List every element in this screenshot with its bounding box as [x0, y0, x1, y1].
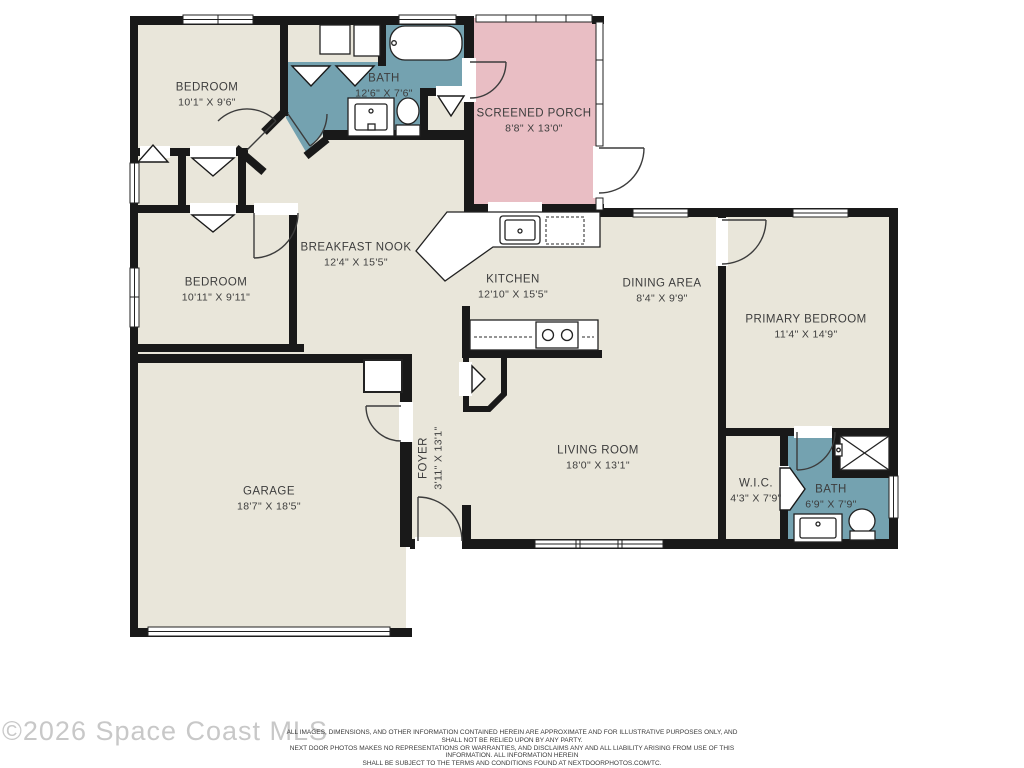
disclaimer-line-1: ALL IMAGES, DIMENSIONS, AND OTHER INFORM…: [277, 729, 747, 745]
floor-plan: BEDROOM10'1" X 9'6" BATH12'6" X 7'6" SCR…: [0, 0, 1024, 768]
label-breakfast-nook: BREAKFAST NOOK12'4" X 15'5": [301, 242, 412, 269]
label-bath-2: BATH6'9" X 7'9": [805, 484, 857, 511]
kitchen-counter-lower: [470, 320, 598, 350]
disclaimer-line-2: NEXT DOOR PHOTOS MAKES NO REPRESENTATION…: [277, 745, 747, 761]
disclaimer-text: ALL IMAGES, DIMENSIONS, AND OTHER INFORM…: [277, 729, 747, 768]
label-kitchen: KITCHEN12'10" X 15'5": [478, 274, 548, 301]
label-primary-bedroom: PRIMARY BEDROOM11'4" X 14'9": [745, 314, 866, 341]
tub-faucet: [392, 41, 397, 46]
label-screened-porch: SCREENED PORCH8'8" X 13'0": [477, 108, 592, 135]
washer: [320, 25, 350, 54]
label-bedroom-1: BEDROOM10'1" X 9'6": [176, 82, 239, 109]
bath2-toilet: [849, 509, 875, 533]
porch-screen-right: [596, 22, 603, 146]
dryer: [354, 25, 380, 56]
disclaimer-line-3: SHALL BE SUBJECT TO THE TERMS AND CONDIT…: [277, 760, 747, 768]
label-bath-1: BATH12'6" X 7'6": [355, 73, 413, 100]
label-dining-area: DINING AREA8'4" X 9'9": [622, 278, 701, 305]
water-heater-alcove: [364, 360, 402, 392]
label-bedroom-2: BEDROOM10'11" X 9'11": [182, 277, 251, 304]
label-garage: GARAGE18'7" X 18'5": [237, 486, 301, 513]
bathtub: [390, 26, 462, 60]
label-living-room: LIVING ROOM18'0" X 13'1": [557, 445, 639, 472]
label-foyer: FOYER3'11" X 13'1": [418, 426, 445, 489]
label-wic: W.I.C.4'3" X 7'9": [730, 478, 782, 505]
porch-screen-top: [476, 15, 592, 22]
bath1-toilet: [397, 98, 419, 124]
